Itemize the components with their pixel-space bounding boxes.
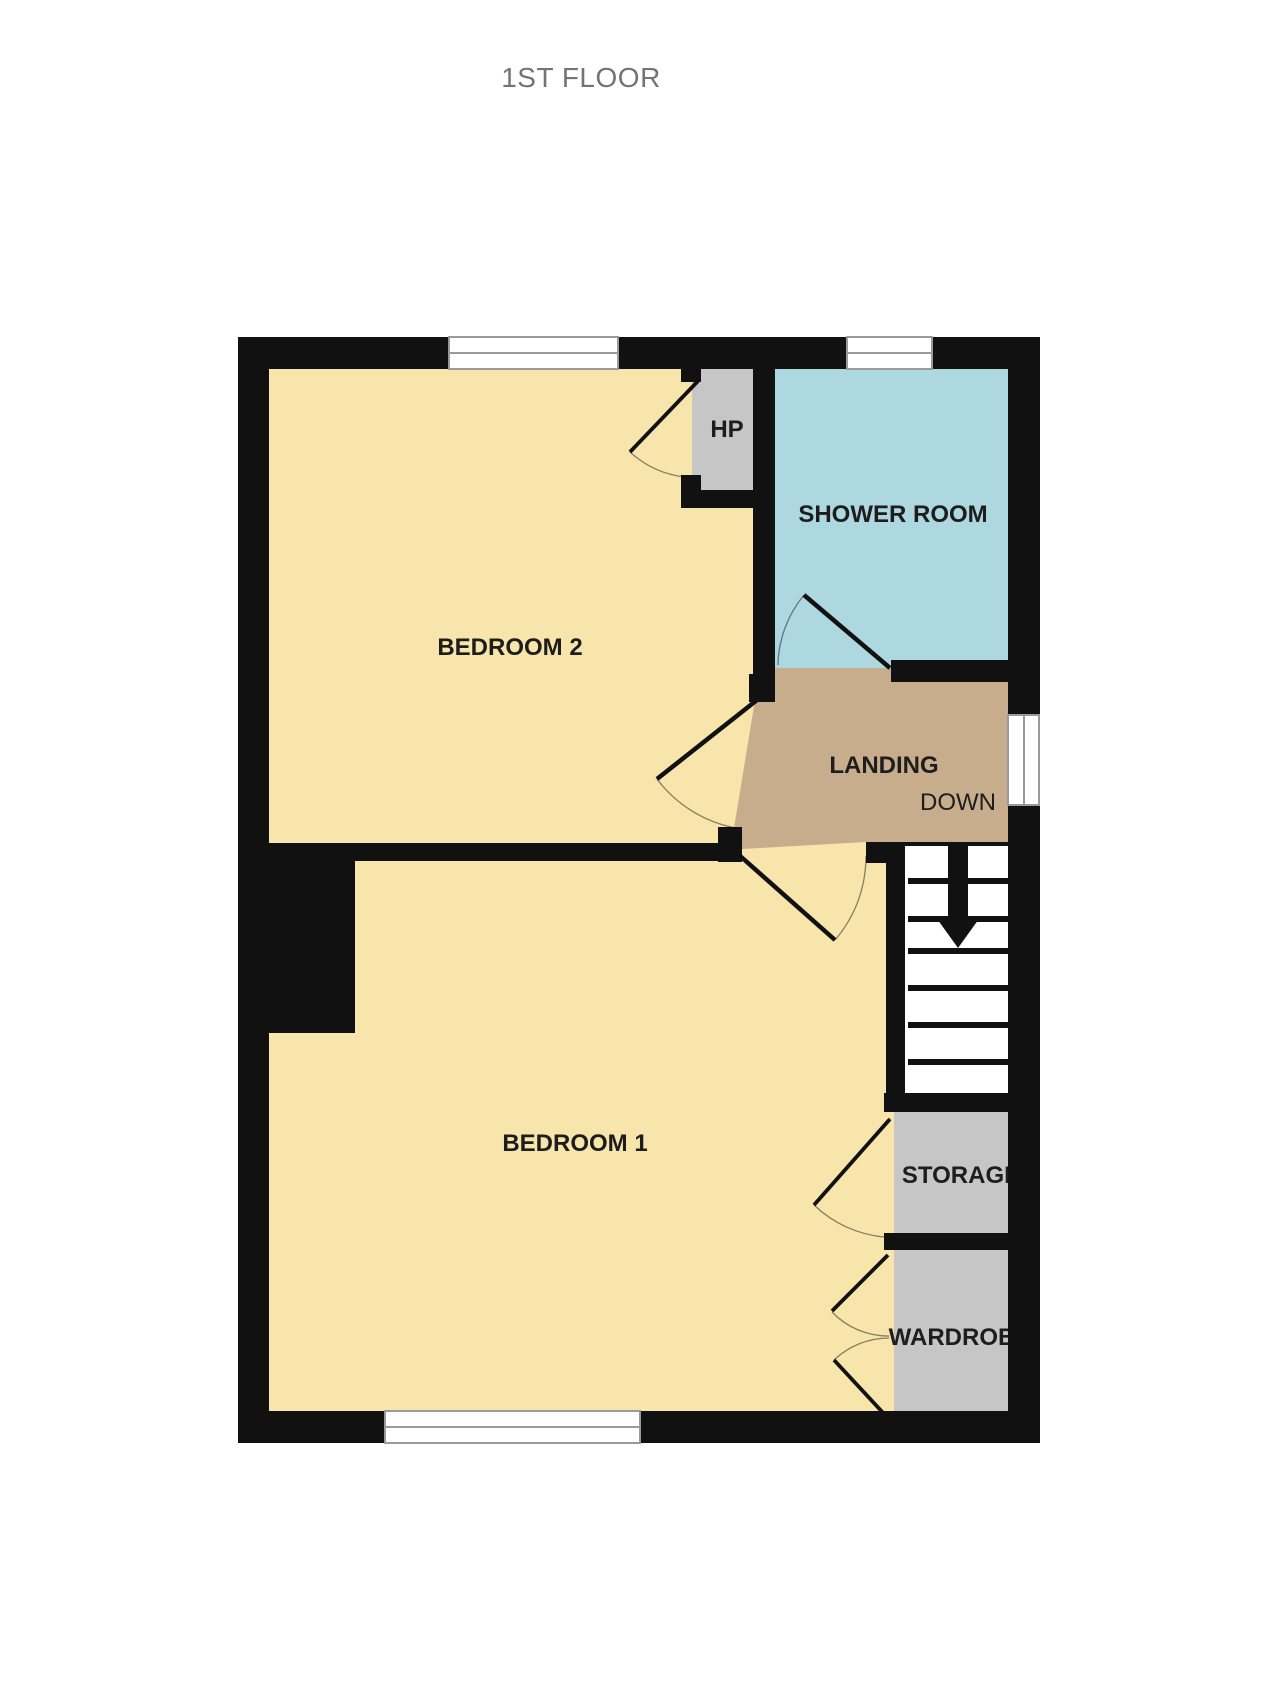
- svg-text:1ST FLOOR: 1ST FLOOR: [501, 62, 661, 93]
- svg-text:DOWN: DOWN: [920, 789, 996, 816]
- svg-text:BEDROOM 1: BEDROOM 1: [502, 1130, 647, 1157]
- svg-text:SHOWER ROOM: SHOWER ROOM: [798, 501, 987, 528]
- svg-text:STORAGE: STORAGE: [902, 1162, 1020, 1189]
- svg-text:BEDROOM 2: BEDROOM 2: [437, 634, 582, 661]
- svg-text:HP: HP: [710, 416, 743, 443]
- svg-text:LANDING: LANDING: [829, 752, 938, 779]
